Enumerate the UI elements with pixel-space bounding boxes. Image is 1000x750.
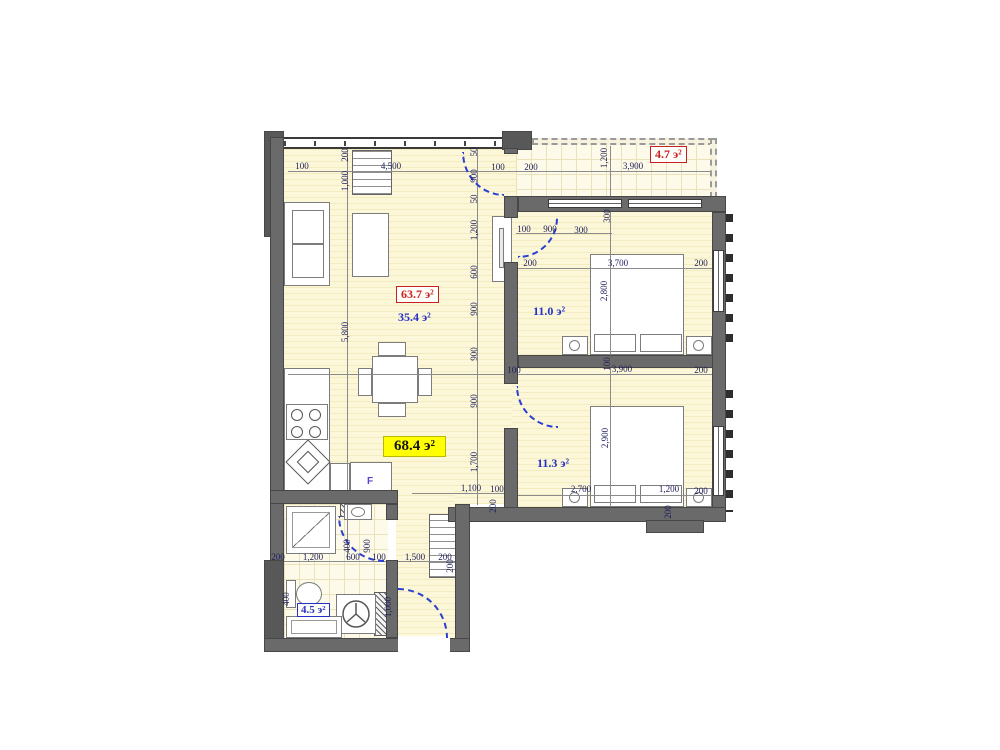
chair	[378, 403, 406, 417]
dimension-label: 200	[488, 499, 498, 513]
dimension-label: 3,700	[608, 258, 628, 268]
facade-notches	[726, 214, 733, 354]
chair	[418, 368, 432, 396]
lamp	[693, 340, 704, 351]
dimension-label: 200	[694, 258, 708, 268]
dimension-label: 900	[469, 394, 479, 408]
dimension-label: 100	[602, 357, 612, 371]
dimension-label: 1,100	[461, 483, 481, 493]
balcony-area-label: 4.7 э²	[650, 146, 687, 163]
dimension-label: 900	[362, 539, 372, 553]
dimension-label: 600	[346, 552, 360, 562]
pillow	[640, 334, 682, 352]
dimension-label: 900	[469, 169, 479, 183]
dimension-label: 900	[469, 347, 479, 361]
dimension-label: 200	[694, 486, 708, 496]
dimension-label: 1,200	[303, 552, 323, 562]
living-area-label: 35.4 э²	[398, 310, 431, 325]
fridge-label: F	[367, 476, 373, 487]
dimension-label: 200	[523, 258, 537, 268]
stove-burner	[309, 409, 321, 421]
balcony-glazing-right	[710, 138, 717, 198]
dimension-label: 1,200	[659, 484, 679, 494]
dimension-label: 200	[694, 365, 708, 375]
total-area-label: 68.4 э²	[383, 436, 446, 457]
dimension-label: 4,500	[381, 161, 401, 171]
window-bedroom2	[713, 426, 724, 496]
dimension-label: 1,700	[469, 452, 479, 472]
dimension-label: 100	[517, 224, 531, 234]
dimension-label: 900	[543, 224, 557, 234]
wall-central	[504, 428, 518, 512]
dimension-label: 300	[602, 209, 612, 223]
stove-burner	[291, 426, 303, 438]
dimension-label: 50	[469, 195, 479, 204]
dimension-label: 2,900	[600, 428, 610, 448]
wall-hall-right	[455, 504, 470, 652]
dimension-label: 50	[469, 148, 479, 157]
bathroom-area-label: 4.5 э²	[297, 603, 330, 617]
dimension-label: 100	[507, 365, 521, 375]
dimension-label: 100	[372, 552, 386, 562]
dimension-label: 100	[295, 161, 309, 171]
dimension-label: 600	[469, 265, 479, 279]
dimension-label: 200	[340, 148, 350, 162]
washing-machine	[336, 594, 376, 634]
sofa-cushion	[292, 210, 324, 244]
dimension-label: 1,000	[383, 597, 393, 617]
dimension-label: 200	[524, 162, 538, 172]
entry-door-opening	[398, 636, 450, 653]
window-bedroom1	[713, 250, 724, 312]
dimension-label: 1,000	[340, 171, 350, 191]
window-mullions	[284, 141, 506, 146]
living-total-area-label: 63.7 э²	[396, 286, 439, 303]
dimension-label: 200	[271, 552, 285, 562]
pillow	[594, 334, 636, 352]
dimension-line	[516, 268, 714, 269]
dimension-label: 2,700	[571, 484, 591, 494]
shower-tray	[292, 512, 330, 548]
bath-cabinet-inner	[291, 620, 337, 634]
dimension-line	[288, 374, 714, 375]
dimension-label: 2,800	[599, 281, 609, 301]
dimension-line	[532, 171, 712, 172]
dimension-label: 200	[663, 505, 673, 519]
bedroom2-area-label: 11.3 э²	[537, 456, 569, 471]
dimension-label: 200	[445, 559, 455, 573]
dimension-label: 100	[490, 484, 504, 494]
balcony-glazing-top	[532, 138, 714, 145]
dimension-label: 3,900	[623, 161, 643, 171]
dimension-label: 1,500	[405, 552, 425, 562]
sofa-cushion	[292, 244, 324, 278]
dimension-label: 100	[491, 162, 505, 172]
window-bedroom1-balcony	[628, 199, 702, 208]
facade-notches	[726, 390, 733, 512]
dining-table	[372, 356, 418, 403]
dimension-label: 5,800	[340, 322, 350, 342]
dimension-line	[516, 495, 714, 496]
chair	[358, 368, 372, 396]
stove-burner	[309, 426, 321, 438]
bedroom1-area-label: 11.0 э²	[533, 304, 565, 319]
dimension-label: 3,900	[612, 364, 632, 374]
wall-central	[504, 148, 518, 154]
stove-burner	[291, 409, 303, 421]
coffee-table	[352, 213, 389, 277]
wall-bathroom-top	[270, 490, 398, 504]
wall-bathroom-right	[386, 504, 398, 520]
lamp	[569, 340, 580, 351]
washing-machine-drum	[337, 595, 375, 633]
dimension-label: 900	[469, 302, 479, 316]
wall-central	[504, 196, 518, 218]
floor-plan: F	[0, 0, 1000, 750]
dimension-label: 400	[281, 592, 291, 606]
window-bedroom1-balcony	[548, 199, 622, 208]
dimension-label: 400	[342, 539, 352, 553]
pillow	[594, 485, 636, 503]
dimension-label: 300	[574, 225, 588, 235]
dimension-label: 1,200	[469, 220, 479, 240]
dimension-label: 1,200	[599, 148, 609, 168]
wall-step	[646, 520, 704, 533]
chair	[378, 342, 406, 356]
tv-stand	[352, 150, 392, 195]
